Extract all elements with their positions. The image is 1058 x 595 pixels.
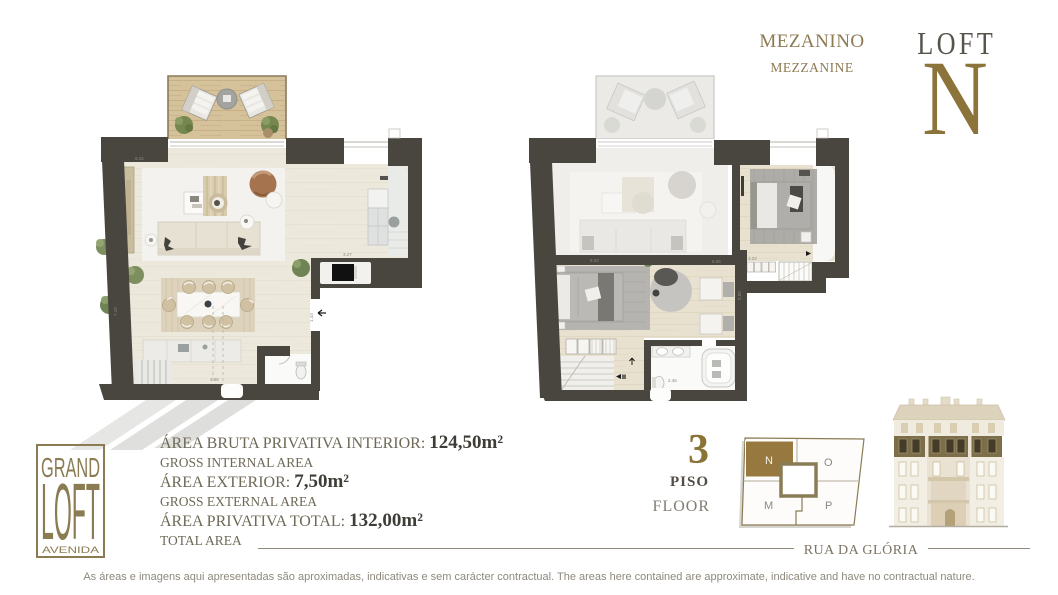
svg-text:3.22: 3.22 [748,256,757,261]
svg-text:9.22: 9.22 [135,156,144,161]
svg-text:AVENIDA: AVENIDA [42,545,99,555]
svg-text:LOFT: LOFT [41,467,100,556]
svg-text:P: P [825,500,832,512]
svg-text:3.27: 3.27 [343,252,352,257]
svg-text:2.46: 2.46 [668,378,677,383]
svg-text:1.43: 1.43 [309,313,314,322]
svg-text:N: N [765,455,773,467]
svg-text:9.22: 9.22 [590,258,599,263]
svg-text:2.50: 2.50 [737,291,742,300]
svg-text:7.19: 7.19 [113,307,118,316]
svg-text:O: O [824,457,833,469]
svg-text:6.65: 6.65 [712,259,721,264]
svg-text:M: M [764,500,773,512]
svg-text:4.66: 4.66 [210,377,219,382]
